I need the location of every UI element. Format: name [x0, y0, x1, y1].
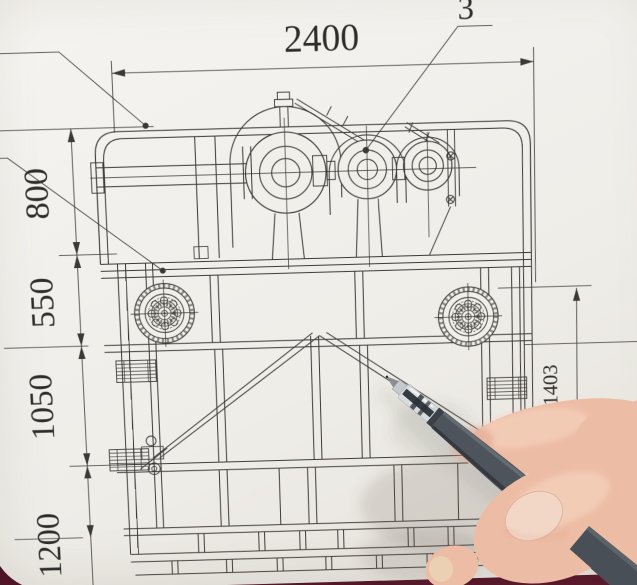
dim-1050-label: 1050 — [22, 373, 63, 440]
photo-stage: 2400 800 550 1050 1200 — [0, 0, 637, 585]
vibrator-bearing-left — [129, 279, 199, 348]
callout-3-label: 3 — [457, 0, 474, 26]
callout-2-label: 2 — [0, 16, 2, 53]
dim-1403-label: 1403 — [539, 364, 563, 406]
dim-550-label: 550 — [22, 277, 62, 329]
callout-2: 2 — [0, 11, 149, 133]
dimension-chain-left: 800 550 1050 1200 — [0, 127, 173, 585]
vibrator-bearing-right — [434, 282, 503, 351]
dim-1200-label: 1200 — [29, 512, 69, 578]
dim-800-label: 800 — [16, 168, 57, 221]
blueprint-linework: 2400 800 550 1050 1200 — [0, 0, 636, 584]
breather-bolt — [274, 92, 293, 127]
dimension-top-2400: 2400 — [110, 12, 536, 294]
engineering-drawing: 2400 800 550 1050 1200 — [0, 0, 637, 585]
input-shaft — [90, 146, 252, 203]
paper-sheet: 2400 800 550 1050 1200 — [0, 0, 637, 585]
gearbox-assembly — [87, 85, 532, 274]
frame-legs — [112, 144, 534, 576]
dim-2400-label: 2400 — [283, 17, 360, 61]
